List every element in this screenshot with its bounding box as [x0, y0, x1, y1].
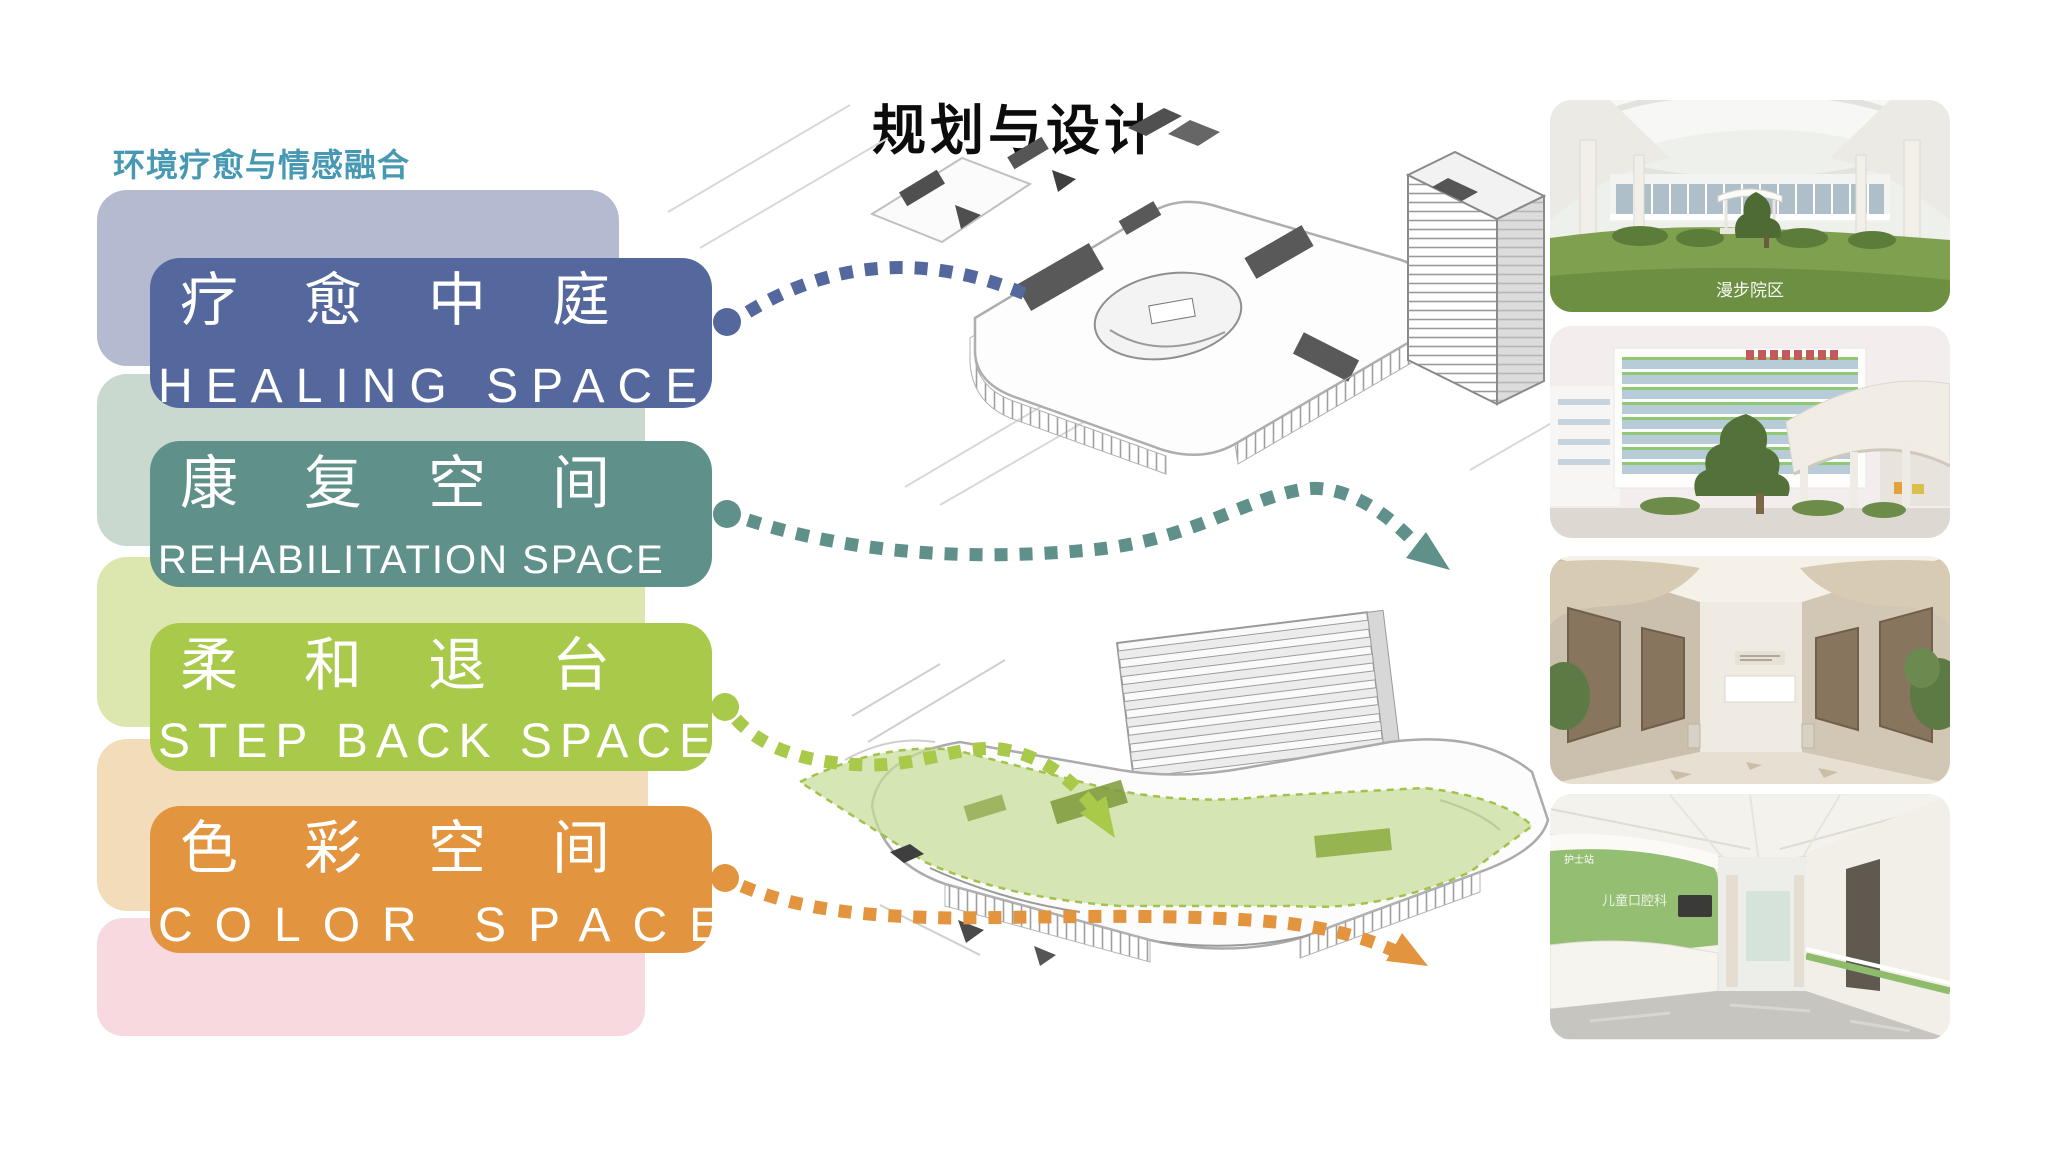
facade-photo	[1550, 326, 1950, 538]
rehabilitation-arrowhead	[1406, 532, 1450, 570]
rehabilitation-arrow	[713, 488, 1450, 570]
podium-facade-right	[1235, 330, 1430, 464]
card-stepback-zh-label: 柔和退台	[180, 633, 676, 700]
street-lines-bottom	[845, 660, 1005, 955]
podium-facade-bottom-left	[945, 884, 1150, 962]
facade-sketch-lines	[930, 800, 1500, 946]
podium-facade-left	[970, 335, 1166, 474]
card-stepback-en-label: STEP BACK SPACE	[158, 714, 719, 769]
street-lines	[668, 105, 1600, 505]
rehabilitation-arrow-dot	[713, 500, 741, 528]
stepback-arrow	[711, 693, 1115, 838]
atrium-courtyard	[1088, 262, 1248, 370]
card-colorspace: 色彩空间 COLOR SPACE	[150, 806, 712, 953]
courtyard-photo-art: 漫步院区	[1550, 100, 1950, 312]
podium-roof	[975, 202, 1430, 455]
card-colorspace-zh-label: 色彩空间	[180, 816, 676, 883]
card-healing-en-label: HEALING SPACE	[158, 359, 710, 414]
podium-facade-bottom-right	[1300, 872, 1480, 958]
colorspace-arrowhead	[1386, 933, 1428, 966]
card-stepback: 柔和退台 STEP BACK SPACE	[150, 623, 712, 771]
podium-roof-bottom	[872, 739, 1548, 948]
site-marks	[890, 844, 1056, 966]
healing-arrow-dot	[713, 308, 741, 336]
striped-tower	[1117, 610, 1402, 799]
stepback-arrowhead	[1080, 796, 1115, 838]
card-healing: 疗愈中庭 HEALING SPACE	[150, 258, 712, 408]
card-rehabilitation-zh-label: 康复空间	[180, 451, 676, 518]
card-healing-zh-label: 疗愈中庭	[180, 268, 676, 335]
facade-photo-art	[1550, 326, 1950, 538]
section-heading: 环境疗愈与情感融合	[113, 140, 410, 186]
side-block	[872, 158, 1030, 242]
elevator-hall-photo-art	[1550, 556, 1950, 784]
roof-openings	[1016, 201, 1359, 382]
colorspace-arrow	[711, 864, 1428, 966]
card-rehabilitation: 康复空间 REHABILITATION SPACE	[150, 441, 712, 587]
tower	[1408, 152, 1544, 404]
green-corridor-photo-art: 护士站 儿童口腔科	[1550, 794, 1950, 1040]
page-title: 规划与设计	[872, 86, 1162, 165]
slide: 规划与设计 环境疗愈与情感融合 疗愈中庭 HEALING SPACE 康复空间 …	[0, 0, 2048, 1152]
elevator-hall-photo	[1550, 556, 1950, 784]
photo-caption: 漫步院区	[1716, 281, 1784, 300]
atrium-deck	[1149, 298, 1195, 323]
green-corridor-photo: 护士站 儿童口腔科	[1550, 794, 1950, 1040]
green-roof-units	[964, 780, 1392, 858]
department-label: 儿童口腔科	[1602, 893, 1667, 908]
colorspace-arrow-dot	[711, 864, 739, 892]
stepback-highlight-overlay	[800, 749, 1532, 907]
nurse-station-label: 护士站	[1564, 853, 1594, 866]
healing-arrow	[713, 268, 1030, 336]
axon-drawing-top	[668, 105, 1600, 505]
courtyard-photo: 漫步院区	[1550, 100, 1950, 312]
axon-drawing-bottom	[800, 610, 1548, 966]
card-rehabilitation-en-label: REHABILITATION SPACE	[158, 538, 665, 583]
card-colorspace-en-label: COLOR SPACE	[158, 898, 743, 953]
atrium-curve	[1110, 330, 1225, 347]
